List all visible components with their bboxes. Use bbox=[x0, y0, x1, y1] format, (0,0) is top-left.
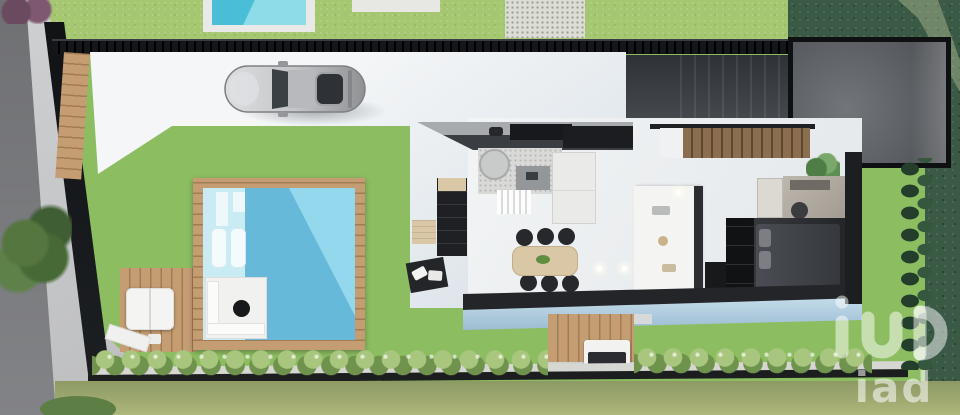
dining-chair bbox=[520, 274, 537, 291]
staircase bbox=[683, 128, 810, 158]
neighbor-pool-water bbox=[212, 0, 306, 25]
coffee-table-item bbox=[526, 172, 538, 180]
street-tree bbox=[0, 200, 72, 296]
neighbor-terrace bbox=[352, 0, 440, 12]
chaise-headrest bbox=[438, 178, 466, 191]
in-pool-lounger bbox=[211, 228, 227, 268]
dining-chair bbox=[537, 228, 554, 245]
platform-sofa-front bbox=[207, 323, 265, 335]
watermark-text: iad bbox=[855, 363, 934, 412]
top-fence bbox=[52, 39, 790, 54]
pouf-pillow-2 bbox=[428, 270, 443, 281]
flower-hedge-left bbox=[92, 346, 548, 379]
platform-table bbox=[233, 300, 250, 317]
silver-car bbox=[222, 58, 368, 120]
island-counter-edge bbox=[694, 186, 703, 294]
round-chair bbox=[479, 149, 510, 180]
ceiling-light bbox=[622, 266, 627, 271]
double-sun-lounger bbox=[126, 288, 174, 330]
desk-chair bbox=[791, 202, 808, 219]
east-wall bbox=[845, 152, 862, 304]
dining-chair bbox=[541, 275, 558, 292]
dining-chair bbox=[558, 228, 575, 245]
pool-step-platform-2 bbox=[233, 192, 245, 212]
island-bowl bbox=[658, 236, 668, 246]
gravel-path bbox=[505, 0, 585, 38]
sofa bbox=[552, 152, 596, 224]
island-sink bbox=[652, 206, 670, 215]
lounger-split bbox=[149, 288, 151, 330]
pool-lounge-platform bbox=[205, 277, 267, 339]
island-board bbox=[662, 264, 676, 272]
floorplan-render: iad bbox=[0, 0, 960, 415]
pool-step-platform bbox=[216, 192, 228, 226]
kitchen-cabinet bbox=[563, 126, 633, 148]
bed-pillow bbox=[759, 229, 771, 247]
ceiling-light bbox=[676, 190, 681, 195]
purple-shrub bbox=[0, 0, 54, 24]
in-pool-lounger-2 bbox=[230, 228, 246, 268]
corner-bush bbox=[40, 396, 116, 415]
countertop-appliance bbox=[489, 127, 503, 136]
slat-bench bbox=[497, 190, 531, 214]
stair-landing bbox=[660, 128, 683, 158]
ceiling-light bbox=[597, 266, 602, 271]
bed-pillow-2 bbox=[759, 251, 771, 269]
desk bbox=[790, 180, 830, 190]
neighbor-lawn-bottom bbox=[55, 381, 960, 415]
outdoor-ottoman bbox=[412, 220, 436, 244]
wardrobe-white bbox=[757, 178, 783, 218]
iad-watermark: iad bbox=[828, 290, 960, 412]
table-centerpiece bbox=[536, 255, 550, 264]
courtyard-wall-highlight bbox=[912, 42, 946, 163]
dining-chair bbox=[516, 229, 533, 246]
pouf-pillow bbox=[411, 266, 428, 281]
iad-logo-glyph bbox=[836, 296, 942, 355]
dining-chair bbox=[562, 275, 579, 292]
